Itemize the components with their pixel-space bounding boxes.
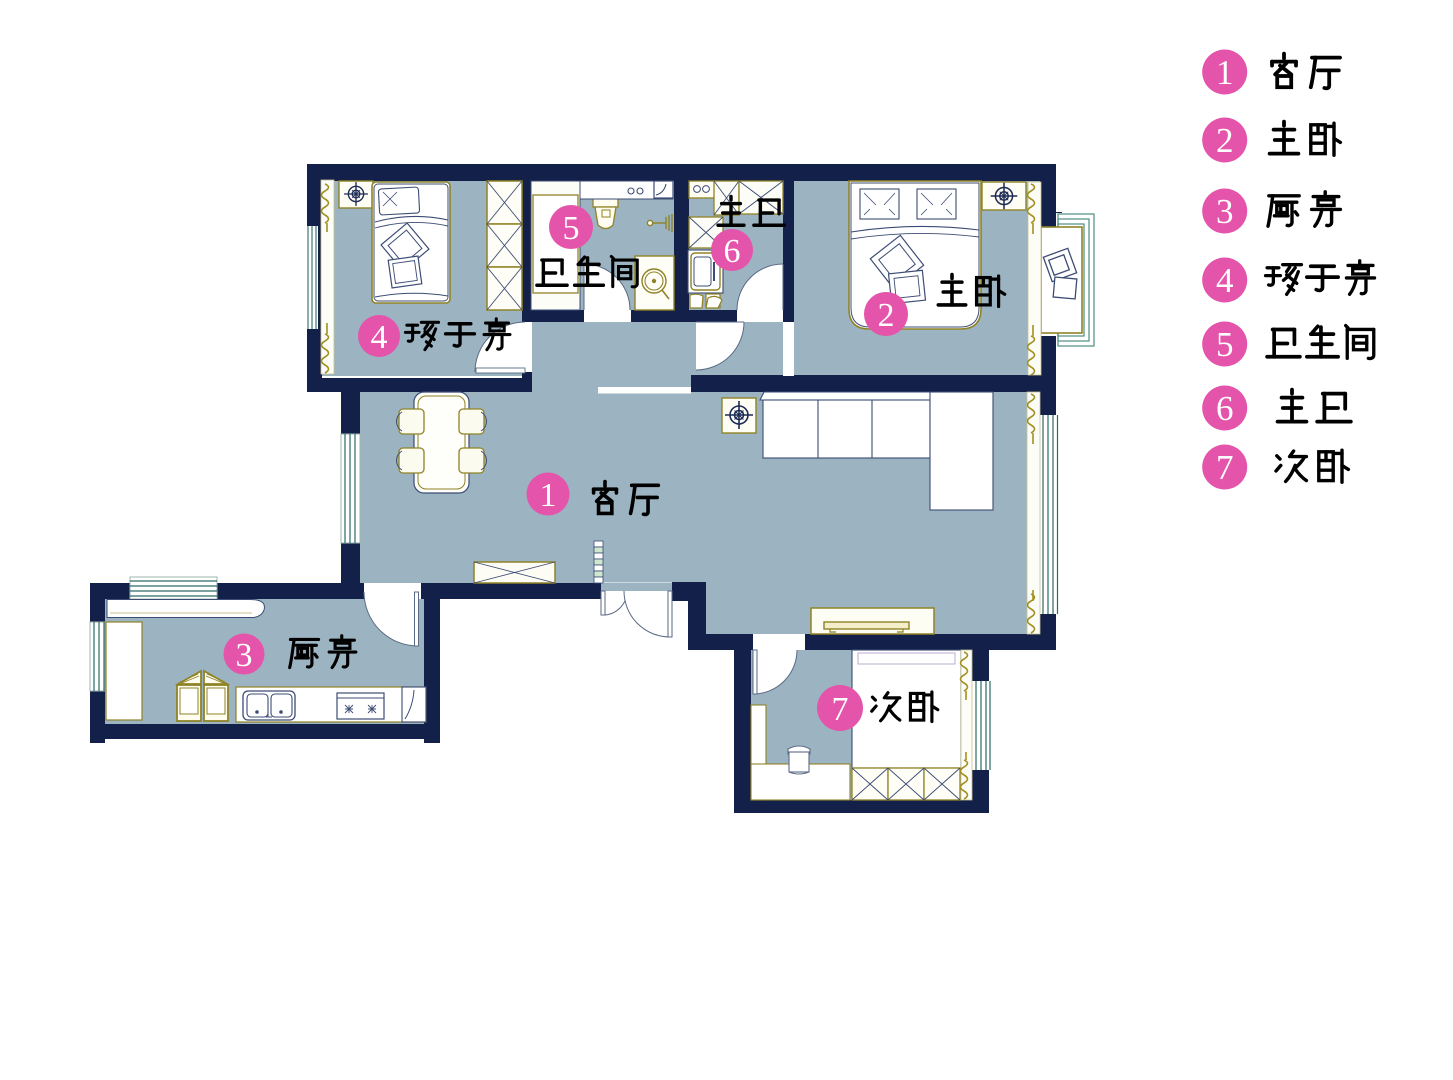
svg-text:2: 2: [1216, 121, 1234, 160]
svg-text:5: 5: [563, 210, 580, 247]
svg-text:3: 3: [236, 637, 253, 674]
svg-text:3: 3: [1216, 192, 1234, 231]
svg-text:1: 1: [540, 477, 557, 514]
svg-text:7: 7: [1216, 448, 1234, 487]
svg-text:1: 1: [1216, 53, 1234, 92]
svg-text:6: 6: [1216, 389, 1234, 428]
svg-text:5: 5: [1216, 325, 1234, 364]
svg-text:6: 6: [724, 233, 741, 270]
svg-text:4: 4: [371, 319, 388, 356]
svg-text:2: 2: [878, 297, 895, 334]
svg-text:7: 7: [832, 691, 849, 728]
svg-text:4: 4: [1216, 261, 1234, 300]
